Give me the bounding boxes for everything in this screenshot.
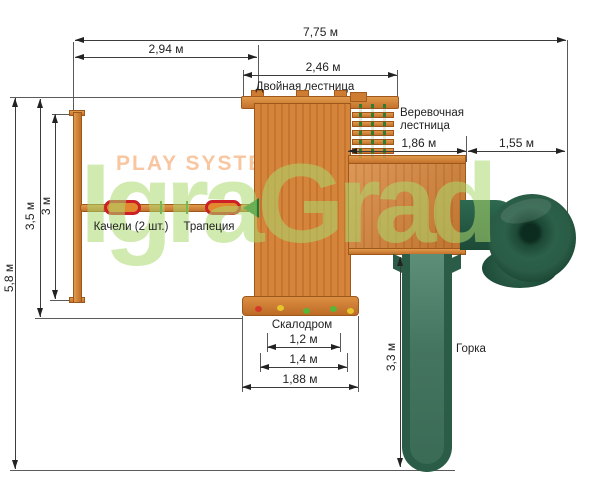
dim-label: 3,5 м — [23, 202, 37, 230]
ext-line — [242, 316, 243, 392]
dim-label: 2,94 м — [149, 42, 184, 56]
dim-spiral-slide-width: 1,55 м — [468, 151, 565, 152]
dim-label: 3 м — [39, 197, 53, 215]
dim-slide-length — [400, 257, 401, 467]
dim-swing-beam-length — [55, 114, 56, 299]
climbing-hold — [303, 308, 310, 314]
dim-climbing-wall-inner: 1,2 м — [267, 347, 340, 348]
double-ladder-label: Двойная лестница — [256, 81, 355, 93]
dim-label: 3,3 м — [384, 343, 398, 371]
straight-slide-chute — [410, 254, 444, 464]
trapeze-label: Трапеция — [183, 221, 234, 233]
climbing-hold — [277, 305, 284, 311]
dim-climbing-wall-mid: 1,4 м — [260, 367, 347, 368]
ext-line — [358, 316, 359, 392]
dim-total-width: 7,75 м — [75, 40, 566, 41]
rope-ladder-label-line2: лестница — [400, 120, 450, 132]
playground-top-view-diagram: PLAY SYSTEM IgraGrad — [0, 0, 600, 498]
dim-climbing-wall-outer: 1,88 м — [242, 387, 358, 388]
ext-line — [340, 333, 341, 352]
dim-label: 7,75 м — [303, 25, 338, 39]
ext-line — [73, 42, 74, 112]
dim-label: 1,4 м — [289, 352, 317, 366]
dim-label: 1,55 м — [499, 136, 534, 150]
ref-line-top — [10, 97, 255, 98]
ref-line-middle — [35, 318, 242, 319]
rope-ladder-label-line1: Веревочная — [400, 107, 464, 119]
climbing-hold — [330, 306, 337, 312]
dim-tower-width: 1,86 м — [348, 151, 466, 152]
dim-double-ladder-span: 2,46 м — [243, 75, 397, 76]
dim-label: 1,86 м — [401, 136, 436, 150]
dim-label: 5,8 м — [2, 264, 16, 292]
climbing-hold — [347, 308, 354, 314]
igragrad-watermark: IgraGrad — [80, 148, 491, 260]
dim-label: 2,46 м — [306, 60, 341, 74]
ref-line-ground — [10, 470, 455, 471]
swings-label: Качели (2 шт.) — [94, 221, 169, 233]
dim-label: 1,2 м — [289, 332, 317, 346]
dim-label: 1,88 м — [283, 372, 318, 386]
slide-label: Горка — [456, 343, 486, 355]
dim-swings-to-platform: 2,94 м — [75, 57, 257, 58]
ext-line — [347, 353, 348, 372]
ladder-post — [350, 92, 367, 102]
climbing-wall-label: Скалодром — [272, 319, 332, 331]
climbing-hold — [255, 306, 262, 312]
